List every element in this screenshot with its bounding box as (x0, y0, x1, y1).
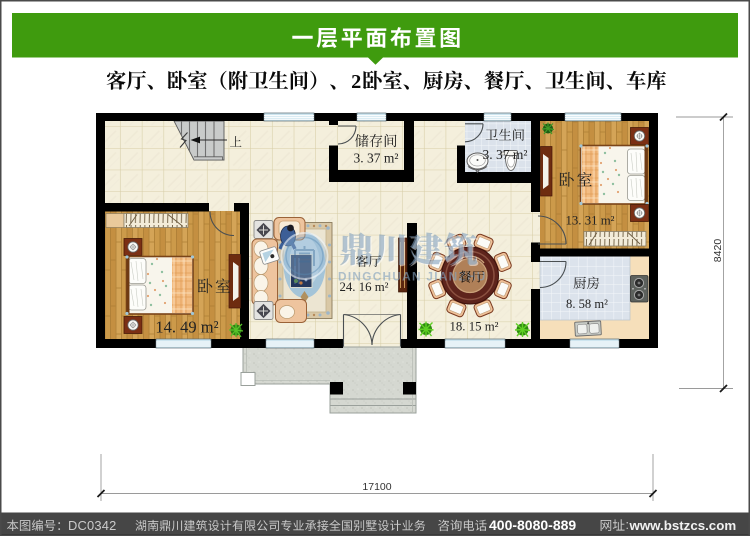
svg-text:DC0342: DC0342 (68, 518, 117, 533)
svg-text:17100: 17100 (362, 481, 391, 493)
svg-text:24. 16 m²: 24. 16 m² (340, 280, 389, 294)
svg-text:14. 49 m²: 14. 49 m² (155, 318, 218, 337)
svg-text:3. 37 m²: 3. 37 m² (483, 147, 528, 162)
svg-text:18. 15 m²: 18. 15 m² (450, 320, 499, 334)
svg-text:400-8080-889: 400-8080-889 (489, 517, 576, 533)
svg-text:8. 58 m²: 8. 58 m² (566, 297, 608, 311)
svg-text:13. 31 m²: 13. 31 m² (566, 214, 615, 228)
svg-text::: : (626, 518, 629, 532)
svg-text:www.bstzcs.com: www.bstzcs.com (629, 518, 737, 533)
svg-text:3. 37 m²: 3. 37 m² (354, 151, 399, 166)
svg-text:8420: 8420 (712, 239, 724, 263)
svg-text:2: 2 (351, 71, 361, 93)
